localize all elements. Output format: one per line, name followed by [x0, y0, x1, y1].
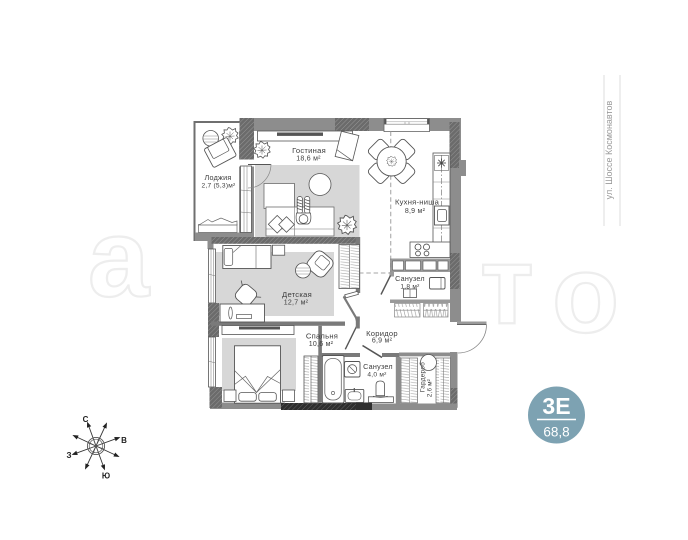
svg-text:10,6 м²: 10,6 м² — [309, 341, 334, 348]
svg-text:Санузел: Санузел — [363, 362, 393, 371]
svg-text:Гостиная: Гостиная — [292, 146, 326, 155]
svg-text:12,7 м²: 12,7 м² — [284, 300, 309, 307]
svg-text:Спальня: Спальня — [306, 331, 338, 340]
svg-text:С: С — [83, 415, 89, 424]
svg-text:ул. Шоссе Космонавтов: ул. Шоссе Космонавтов — [604, 100, 614, 199]
svg-text:З: З — [66, 451, 71, 460]
svg-text:Гардероб: Гардероб — [419, 362, 427, 392]
svg-text:а: а — [88, 197, 150, 320]
svg-text:6,9 м²: 6,9 м² — [372, 338, 393, 345]
svg-text:Ю: Ю — [102, 472, 110, 481]
svg-text:Кухня-ниша: Кухня-ниша — [395, 198, 440, 207]
svg-text:68,8: 68,8 — [543, 425, 569, 440]
svg-text:8,9 м²: 8,9 м² — [405, 208, 426, 215]
svg-text:2,6 м²: 2,6 м² — [427, 379, 434, 397]
svg-text:18,6 м²: 18,6 м² — [296, 156, 321, 163]
svg-text:1,8 м²: 1,8 м² — [400, 284, 420, 291]
svg-text:4,0 м²: 4,0 м² — [367, 372, 387, 379]
svg-text:т: т — [480, 224, 534, 347]
svg-text:о: о — [552, 233, 619, 356]
svg-text:Лоджия: Лоджия — [205, 173, 232, 182]
svg-text:В: В — [121, 436, 127, 445]
svg-text:3Е: 3Е — [542, 393, 570, 419]
svg-text:Санузел: Санузел — [395, 274, 425, 283]
svg-text:Детская: Детская — [282, 290, 312, 299]
svg-text:2,7 (5,3)м²: 2,7 (5,3)м² — [201, 183, 236, 190]
